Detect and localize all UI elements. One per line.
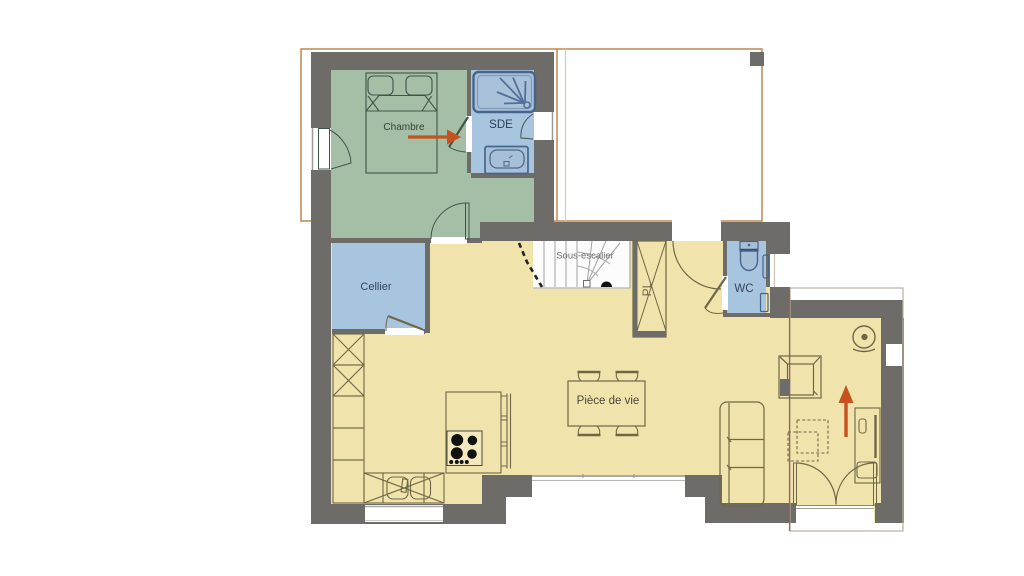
svg-text:Chambre: Chambre xyxy=(383,122,425,133)
svg-text:Pièce de vie: Pièce de vie xyxy=(577,395,640,407)
svg-text:WC: WC xyxy=(734,283,753,295)
svg-text:SDE: SDE xyxy=(489,119,513,131)
svg-text:PL: PL xyxy=(640,281,654,296)
svg-text:Cellier: Cellier xyxy=(360,281,392,293)
svg-text:Sous-escalier: Sous-escalier xyxy=(556,251,614,262)
